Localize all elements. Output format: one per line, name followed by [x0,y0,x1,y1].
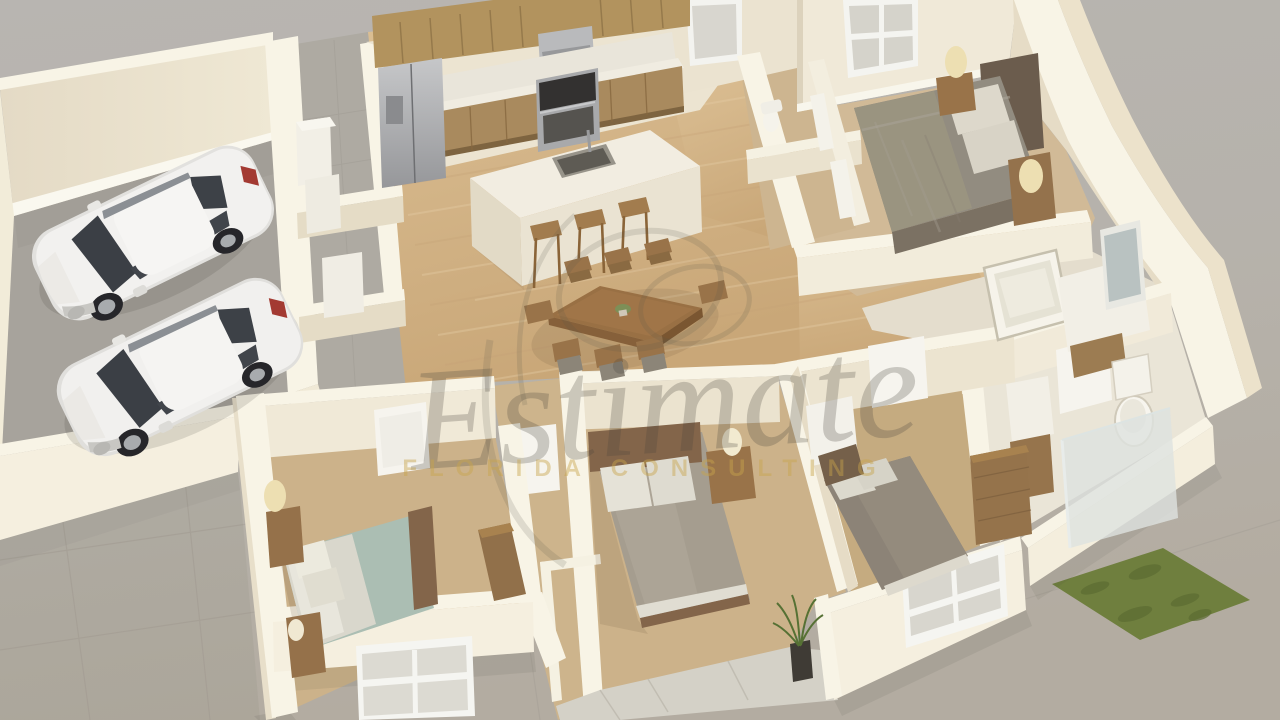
svg-text:FLORIDA CONSULTING: FLORIDA CONSULTING [402,455,887,482]
